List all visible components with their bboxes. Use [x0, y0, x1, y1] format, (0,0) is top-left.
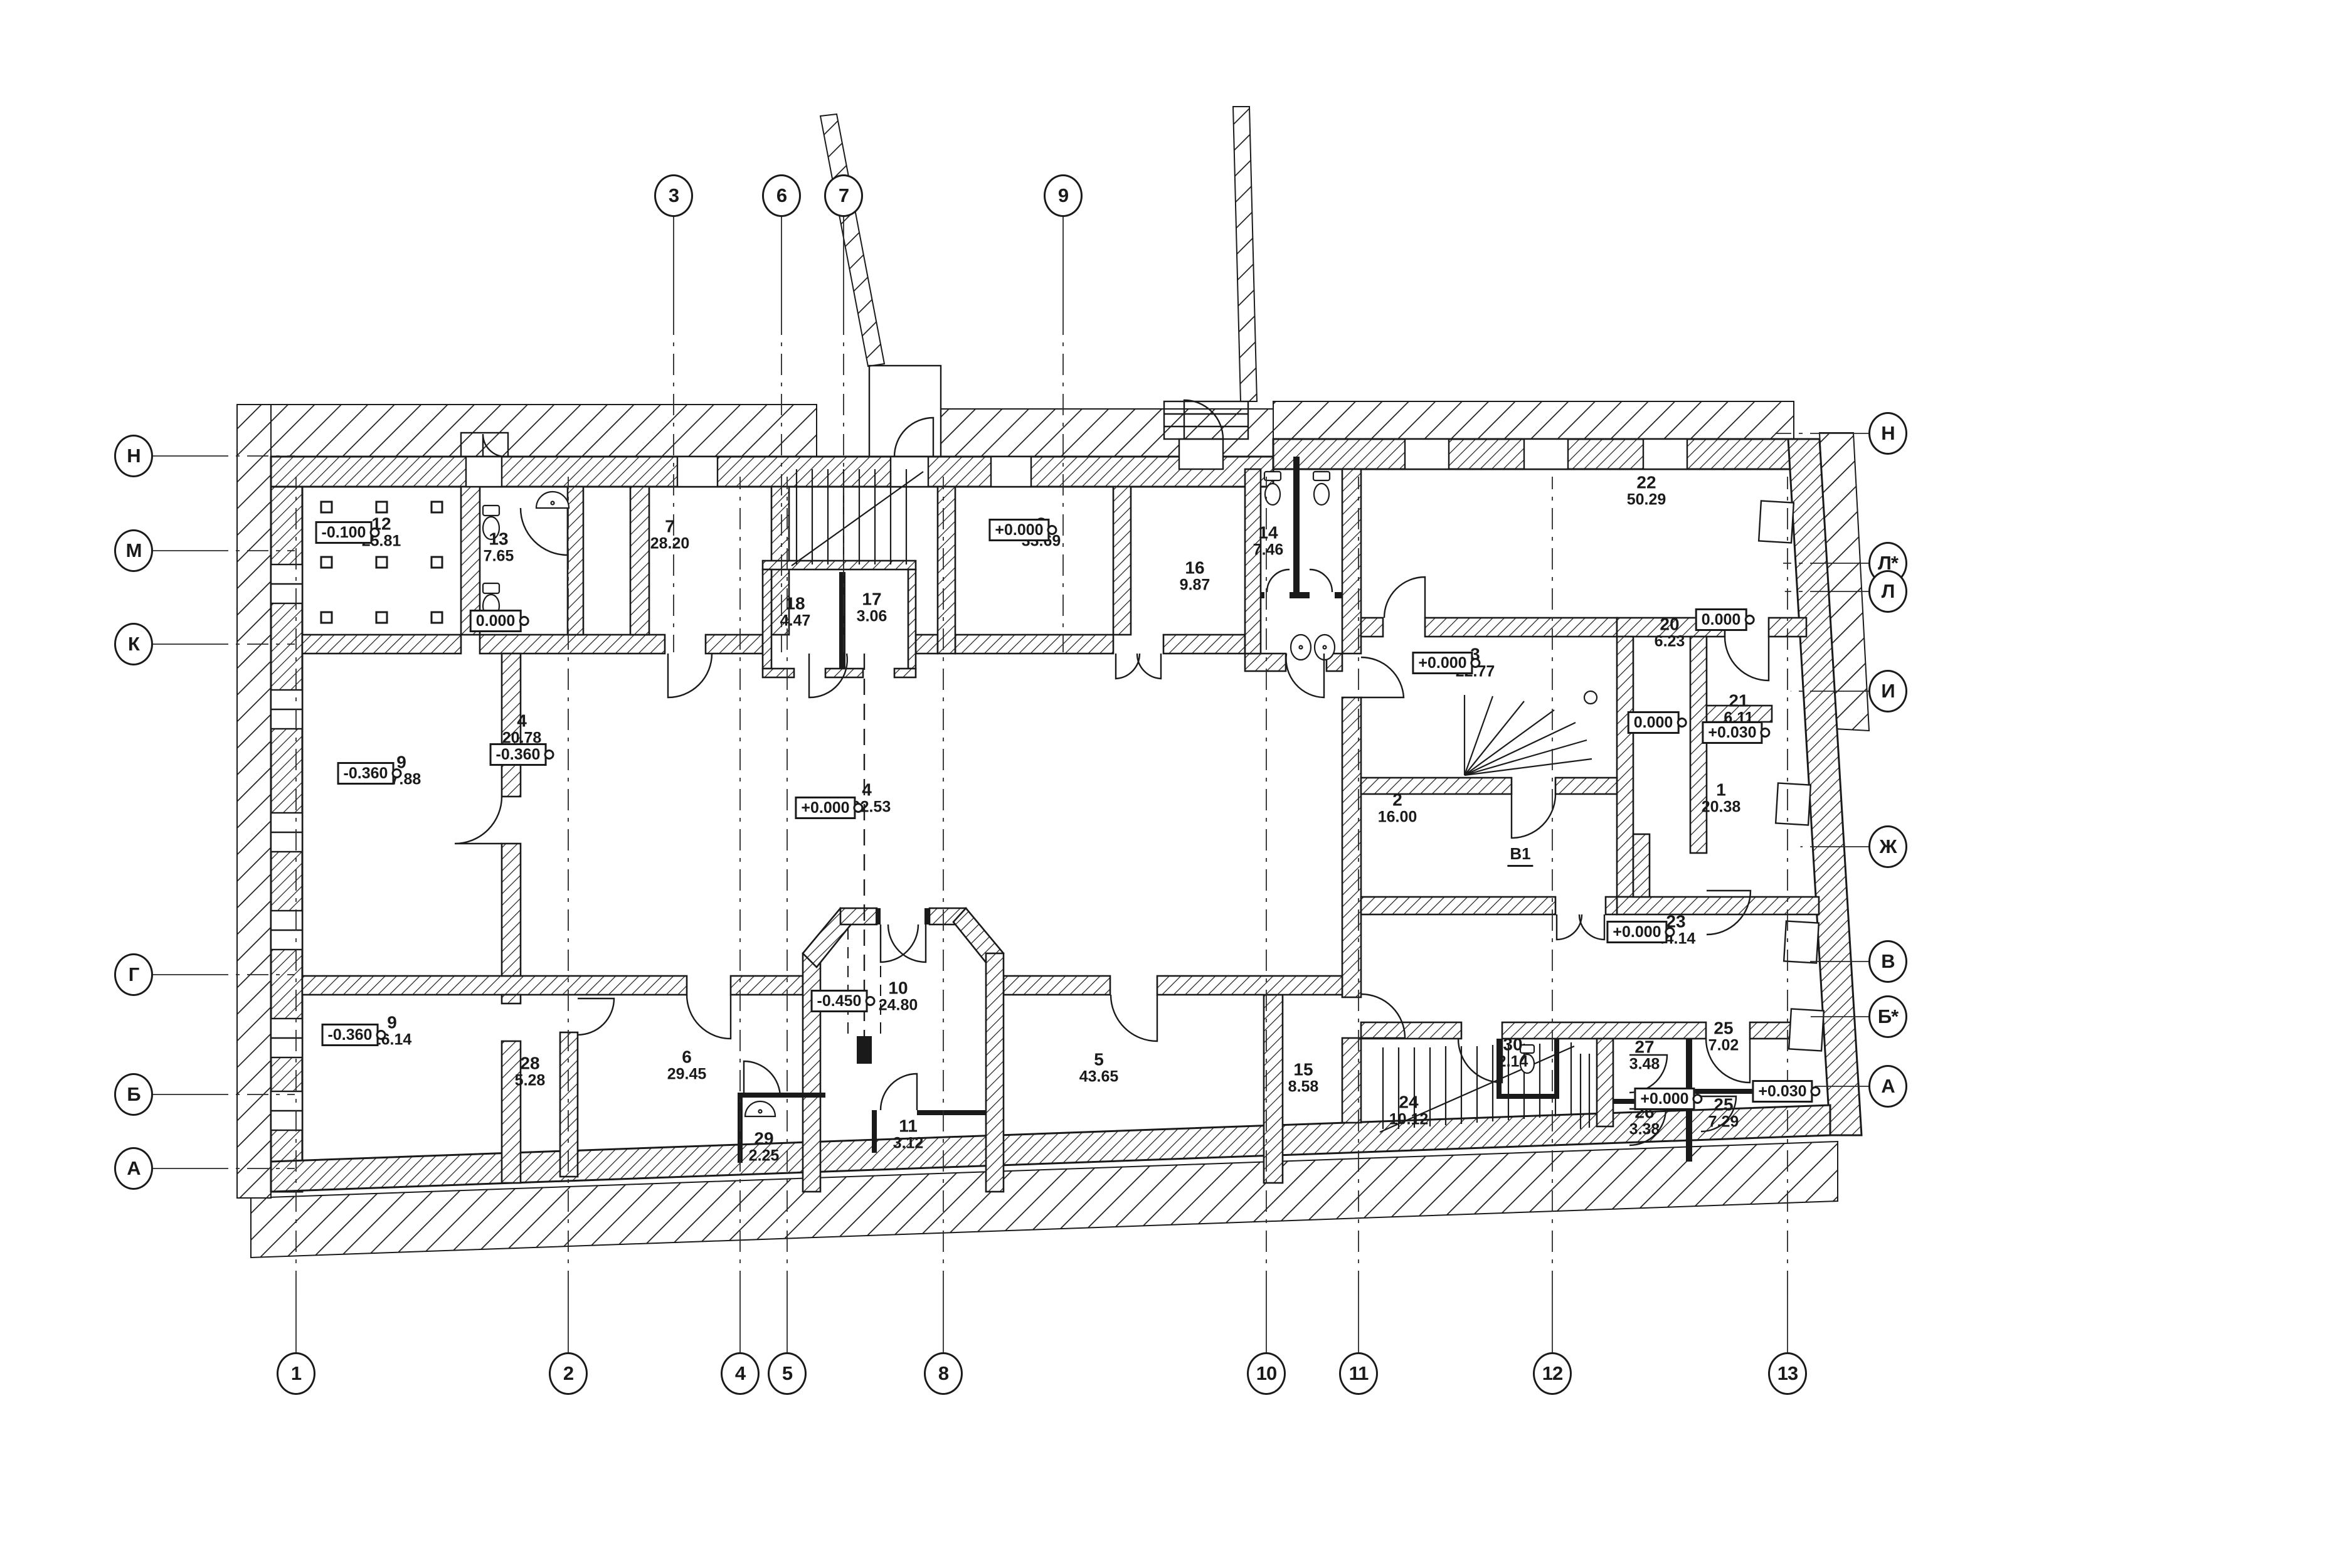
axis-bubble-right-Н: Н — [1868, 412, 1907, 455]
room-label: 2410.12 — [1389, 1093, 1429, 1127]
misc-label: В1 — [1507, 844, 1533, 867]
axis-bubble-label: Л — [1882, 580, 1895, 603]
room-area: 9.87 — [1180, 577, 1210, 593]
room-label: 420.78 — [502, 711, 542, 746]
axis-bubble-left-Н: Н — [114, 435, 153, 477]
elevation-mark: +0.030 — [1752, 1080, 1813, 1103]
room-label: 113.12 — [893, 1116, 924, 1151]
axis-bubble-left-К: К — [114, 623, 153, 665]
room-label: 206.23 — [1655, 615, 1685, 649]
axis-bubble-top-9: 9 — [1044, 174, 1083, 217]
room-number: 14 — [1253, 523, 1284, 541]
elevation-mark: +0.000 — [1634, 1088, 1695, 1110]
room-label: 216.00 — [1378, 790, 1417, 825]
axis-bubble-bottom-13: 13 — [1768, 1352, 1807, 1395]
room-number: 11 — [893, 1116, 924, 1135]
room-number: 22 — [1627, 473, 1666, 491]
room-area: 2.25 — [749, 1148, 780, 1164]
axis-bubble-top-3: 3 — [654, 174, 693, 217]
room-number: 30 — [1498, 1035, 1528, 1053]
room-label: 158.58 — [1288, 1060, 1319, 1094]
room-area: 7.02 — [1708, 1037, 1739, 1054]
elevation-mark: -0.360 — [322, 1024, 379, 1046]
floor-plan-canvas: 36791245810111213НМКГБАНЛ*ЛИЖВБ*А1225.81… — [0, 0, 2352, 1568]
axis-bubble-label: Н — [127, 445, 140, 467]
axis-bubble-label: 3 — [669, 184, 679, 207]
room-number: 28 — [515, 1054, 546, 1072]
axis-bubble-label: 7 — [839, 184, 849, 207]
room-number: 7 — [650, 517, 690, 535]
room-label: 728.20 — [650, 517, 690, 551]
axis-bubble-label: 10 — [1256, 1362, 1276, 1385]
room-area: 5.28 — [515, 1073, 546, 1089]
room-area: 16.00 — [1378, 809, 1417, 825]
room-area: 43.65 — [1079, 1069, 1119, 1085]
room-number: 5 — [1079, 1050, 1119, 1068]
axis-bubble-label: 12 — [1542, 1362, 1562, 1385]
room-label: 292.25 — [749, 1129, 780, 1163]
room-area: 7.65 — [484, 548, 514, 564]
axis-bubble-label: 5 — [782, 1362, 792, 1385]
axis-bubble-left-Б: Б — [114, 1073, 153, 1116]
axis-bubble-label: Н — [1881, 422, 1894, 445]
room-area: 6.23 — [1655, 633, 1685, 650]
room-label: 1024.80 — [879, 978, 918, 1013]
room-number: 1 — [1702, 780, 1741, 798]
room-number: 17 — [857, 590, 887, 608]
axis-bubble-bottom-11: 11 — [1339, 1352, 1378, 1395]
axis-bubble-label: К — [128, 633, 139, 655]
axis-bubble-right-Ж: Ж — [1868, 825, 1907, 868]
axis-bubble-label: Ж — [1879, 835, 1896, 858]
room-label: 257.29 — [1708, 1095, 1739, 1130]
room-area: 10.12 — [1389, 1111, 1429, 1128]
room-label: 169.87 — [1180, 558, 1210, 593]
elevation-mark: +0.000 — [1606, 921, 1667, 943]
axis-bubble-label: 8 — [938, 1362, 948, 1385]
room-label: 285.28 — [515, 1054, 546, 1088]
room-number: 24 — [1389, 1093, 1429, 1111]
elevation-mark: -0.360 — [337, 762, 395, 785]
axis-bubble-right-В: В — [1868, 940, 1907, 983]
axis-bubble-right-А: А — [1868, 1065, 1907, 1108]
room-label: 120.38 — [1702, 780, 1741, 815]
room-number: 18 — [780, 594, 811, 612]
room-area: 50.29 — [1627, 492, 1666, 508]
floor-plan-page: { "axes": { "top": {"bubble_y": 312, "bu… — [0, 0, 2352, 1568]
elevation-mark: -0.100 — [315, 521, 373, 544]
room-number: 16 — [1180, 558, 1210, 576]
room-number: 20 — [1655, 615, 1685, 633]
room-area: 3.06 — [857, 608, 887, 625]
axis-bubble-bottom-12: 12 — [1533, 1352, 1572, 1395]
axis-bubble-label: 9 — [1058, 184, 1068, 207]
elevation-mark: +0.000 — [1412, 652, 1473, 674]
room-number: 25 — [1708, 1095, 1739, 1113]
axis-bubble-bottom-4: 4 — [721, 1352, 760, 1395]
room-area: 20.38 — [1702, 799, 1741, 815]
room-label: 173.06 — [857, 590, 887, 624]
room-area: 3.12 — [893, 1135, 924, 1152]
room-area: 4.47 — [780, 613, 811, 629]
room-label: 302.14 — [1498, 1035, 1528, 1069]
axis-bubble-bottom-10: 10 — [1247, 1352, 1286, 1395]
room-area: 29.45 — [667, 1066, 707, 1083]
axis-bubble-label: 1 — [291, 1362, 301, 1385]
room-area: 3.48 — [1629, 1056, 1660, 1073]
room-number: 13 — [484, 529, 514, 548]
axis-bubble-right-И: И — [1868, 670, 1907, 712]
axis-bubble-label: Г — [129, 963, 139, 986]
axis-bubble-label: 2 — [563, 1362, 573, 1385]
axis-bubble-left-А: А — [114, 1147, 153, 1190]
room-area: 7.29 — [1708, 1114, 1739, 1130]
room-area: 3.38 — [1629, 1121, 1660, 1138]
room-label: 273.48 — [1629, 1037, 1660, 1072]
axis-bubble-label: Б* — [1878, 1005, 1898, 1028]
axis-bubble-label: 13 — [1777, 1362, 1798, 1385]
axis-bubble-label: А — [1881, 1075, 1894, 1098]
room-area: 2.14 — [1498, 1054, 1528, 1070]
room-label: 257.02 — [1708, 1019, 1739, 1053]
room-number: 29 — [749, 1129, 780, 1147]
room-label: 184.47 — [780, 594, 811, 628]
room-number: 4 — [502, 711, 542, 729]
axis-bubble-left-Г: Г — [114, 953, 153, 996]
room-number: 27 — [1629, 1037, 1660, 1056]
axis-bubble-label: В — [1881, 950, 1894, 973]
room-number: 21 — [1724, 691, 1753, 709]
axis-bubble-bottom-5: 5 — [768, 1352, 807, 1395]
axis-bubble-bottom-1: 1 — [277, 1352, 315, 1395]
room-area: 28.20 — [650, 536, 690, 552]
elevation-mark: +0.000 — [988, 519, 1049, 541]
room-area: 24.80 — [879, 997, 918, 1014]
elevation-mark: 0.000 — [1628, 711, 1680, 734]
axis-bubble-label: 4 — [735, 1362, 745, 1385]
elevation-mark: -0.360 — [490, 743, 547, 766]
axis-bubble-bottom-8: 8 — [924, 1352, 963, 1395]
elevation-mark: +0.000 — [795, 797, 856, 819]
room-number: 10 — [879, 978, 918, 997]
elevation-mark: 0.000 — [1695, 608, 1747, 631]
room-area: 7.46 — [1253, 542, 1284, 558]
elevation-mark: +0.030 — [1702, 721, 1762, 744]
room-label: 543.65 — [1079, 1050, 1119, 1084]
room-number: 6 — [667, 1047, 707, 1066]
axis-bubble-top-6: 6 — [762, 174, 801, 217]
axis-bubble-label: А — [127, 1157, 140, 1180]
axis-bubble-label: 11 — [1349, 1362, 1369, 1385]
room-label: 629.45 — [667, 1047, 707, 1082]
room-number: 15 — [1288, 1060, 1319, 1078]
axis-bubble-right-Б*: Б* — [1868, 995, 1907, 1038]
axis-bubble-label: И — [1881, 680, 1894, 702]
axis-bubble-label: М — [126, 539, 142, 562]
elevation-mark: -0.450 — [811, 990, 868, 1012]
room-label: 137.65 — [484, 529, 514, 564]
axis-bubble-right-Л: Л — [1868, 570, 1907, 613]
room-number: 25 — [1708, 1019, 1739, 1037]
axis-bubble-label: Б — [127, 1083, 140, 1106]
elevation-mark: 0.000 — [470, 610, 522, 632]
room-label: 147.46 — [1253, 523, 1284, 558]
axis-bubble-label: 6 — [776, 184, 787, 207]
room-label: 2250.29 — [1627, 473, 1666, 507]
axis-bubble-top-7: 7 — [824, 174, 863, 217]
axis-bubble-left-М: М — [114, 529, 153, 572]
axis-bubble-bottom-2: 2 — [549, 1352, 588, 1395]
room-number: 2 — [1378, 790, 1417, 808]
room-area: 8.58 — [1288, 1079, 1319, 1095]
